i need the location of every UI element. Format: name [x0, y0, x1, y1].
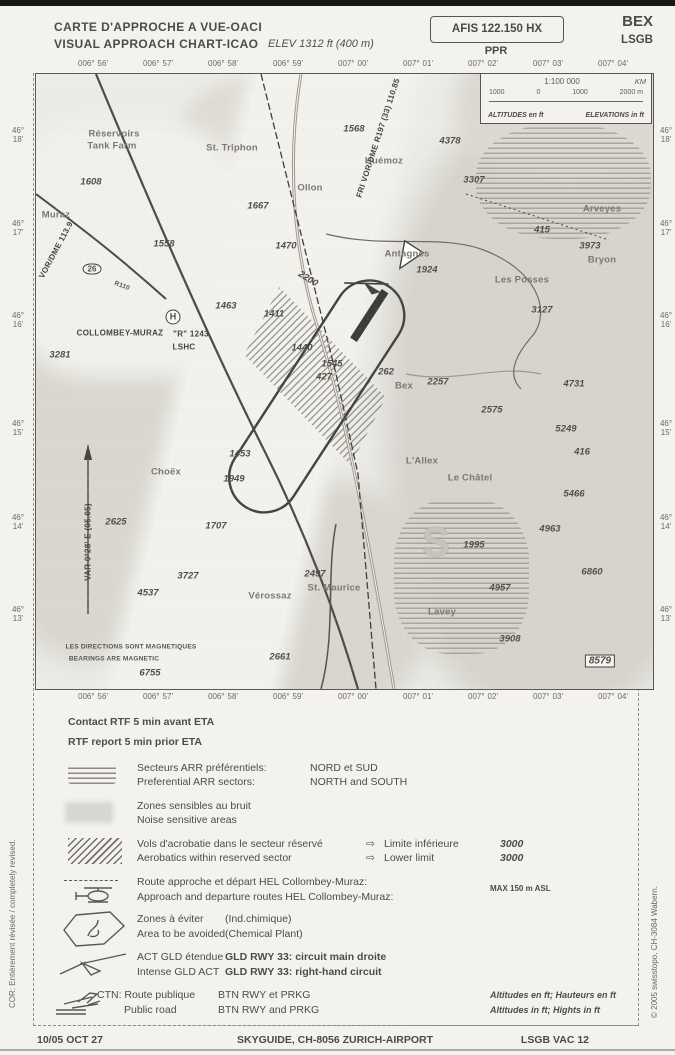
scale-tick: 1000	[489, 89, 505, 96]
elevations-note: ELEVATIONS in ft	[586, 112, 644, 119]
map-label: 1608	[80, 177, 101, 188]
legend-noise-en: Noise sensitive areas	[137, 814, 237, 826]
map-label: Ollon	[297, 183, 322, 194]
latitude-label: 46°13'	[654, 605, 675, 623]
latitude-label: 46°15'	[6, 419, 30, 437]
road-villars	[326, 234, 541, 389]
longitude-label: 007°03'	[533, 692, 563, 701]
latitude-label: 46°16'	[654, 311, 675, 329]
longitude-scale-bottom: 006°56'006°57'006°58'006°59'007°00'007°0…	[35, 692, 652, 704]
scale-bar	[489, 101, 643, 102]
map-label: 3127	[531, 305, 552, 316]
arr-sector-swatch	[68, 764, 116, 784]
legend-gld-en: Intense GLD ACT	[137, 966, 219, 978]
map-label: 5466	[563, 489, 584, 500]
map-label: 1707	[205, 521, 226, 532]
scale-ticks: 1000010002000 m	[489, 89, 643, 96]
map-label: St. Maurice	[308, 583, 361, 594]
legend-hel-fr: Route approche et départ HEL Collombey-M…	[137, 876, 367, 888]
map-label: 416	[574, 447, 590, 458]
map-label: 3973	[579, 241, 600, 252]
map-label: 2497	[304, 569, 325, 580]
copyright-note: © 2005 swisstopo, CH-3084 Wabern.	[650, 886, 659, 1018]
map-label: 1667	[247, 201, 268, 212]
map-label: Tank Farm	[87, 141, 136, 152]
longitude-label: 007°01'	[403, 692, 433, 701]
map-label: 1453	[229, 449, 250, 460]
legend-acro-en: Aerobatics within reserved sector	[137, 852, 292, 864]
latitude-label: 46°18'	[654, 126, 675, 144]
legend-gld-circuit-en: GLD RWY 33: right-hand circuit	[225, 966, 382, 978]
map-label: Le Châtel	[448, 473, 493, 484]
longitude-label: 006°57'	[143, 59, 173, 68]
map-label: COLLOMBEY-MURAZ	[77, 329, 164, 338]
legend-arr-en-value: NORTH and SOUTH	[310, 776, 407, 788]
scale-tick: 1000	[572, 89, 588, 96]
latitude-label: 46°14'	[654, 513, 675, 531]
map-label: 26	[83, 264, 102, 275]
map-label: 1995	[463, 540, 484, 551]
map-label: 1545	[321, 359, 342, 370]
map-label: LSHC	[173, 343, 196, 352]
correction-note: COR: Entièrement révisée / completely re…	[8, 839, 17, 1008]
map-label: 5249	[555, 424, 576, 435]
map-label: 3908	[499, 634, 520, 645]
footer-bar: 10/05 OCT 27 SKYGUIDE, CH-8056 ZURICH-AI…	[33, 1025, 637, 1052]
arrow-icon: ⇨	[366, 852, 375, 864]
latitude-scale-left: 46°18'46°17'46°16'46°15'46°14'46°13'	[6, 73, 32, 688]
latitude-label: 46°17'	[6, 219, 30, 237]
latitude-label: 46°18'	[6, 126, 30, 144]
map-label: L'Allex	[406, 456, 438, 467]
contact-note-en: RTF report 5 min prior ETA	[68, 736, 202, 748]
legend-acro-fr: Vols d'acrobatie dans le secteur réservé	[137, 838, 323, 850]
map-label: 415	[534, 225, 550, 236]
units-note-en: Altitudes in ft; Hights in ft	[490, 1005, 600, 1015]
map-label: 1568	[343, 124, 364, 135]
legend-ctn-fr: CTN: Route publique	[97, 989, 195, 1001]
latitude-scale-right: 46°18'46°17'46°16'46°15'46°14'46°13'	[654, 73, 675, 688]
scale-tick: 0	[536, 89, 540, 96]
longitude-label: 007°02'	[468, 692, 498, 701]
map-label: 1463	[215, 301, 236, 312]
helicopter-icon	[62, 883, 120, 905]
map-label: 1411	[264, 309, 284, 320]
legend-lower-limit-value-en: 3000	[500, 852, 523, 864]
legend-arr-fr: Secteurs ARR préférentiels:	[137, 762, 267, 774]
map-label: Choëx	[151, 467, 181, 478]
airport-icao-code: LSGB	[621, 34, 653, 46]
longitude-label: 007°00'	[338, 692, 368, 701]
latitude-label: 46°13'	[6, 605, 30, 623]
longitude-label: 007°01'	[403, 59, 433, 68]
map-label: BEARINGS ARE MAGNETIC	[69, 656, 159, 663]
scan-top-bar	[0, 0, 675, 6]
map-label: 4378	[439, 136, 460, 147]
longitude-label: 007°02'	[468, 59, 498, 68]
map-label: VAR 0°28' E (05.05)	[84, 503, 93, 581]
aerobatic-sector-swatch	[68, 838, 122, 864]
hel-route-line	[64, 880, 118, 881]
latitude-label: 46°14'	[6, 513, 30, 531]
map-label: 1558	[153, 239, 174, 250]
longitude-label: 006°58'	[208, 59, 238, 68]
longitude-label: 007°04'	[598, 692, 628, 701]
scale-ratio: 1:100 000	[481, 77, 643, 86]
map-label: LES DIRECTIONS SONT MAGNETIQUES	[66, 644, 197, 651]
map-label: S	[422, 518, 450, 566]
avancon-river	[406, 371, 541, 377]
scale-box: 1:100 000 KM 1000010002000 m ALTITUDES e…	[480, 73, 652, 124]
map-label: 6755	[139, 668, 160, 679]
legend-arr-en: Preferential ARR sectors:	[137, 776, 255, 788]
legend-lower-limit-value-fr: 3000	[500, 838, 523, 850]
longitude-label: 006°59'	[273, 692, 303, 701]
latitude-label: 46°15'	[654, 419, 675, 437]
map-label: Lavey	[428, 607, 456, 618]
map-label: Antagnes	[385, 249, 430, 260]
map-linework	[36, 74, 653, 689]
map-label: 262	[378, 367, 394, 378]
map-label: 4537	[137, 588, 158, 599]
map-label: 4731	[563, 379, 584, 390]
legend-ctn-road-en: BTN RWY and PRKG	[218, 1004, 319, 1016]
longitude-label: 007°04'	[598, 59, 628, 68]
map-label: 1440	[291, 343, 312, 354]
map-label: Bryon	[588, 255, 616, 266]
map-label: 1949	[223, 474, 244, 485]
legend-avoid-en-detail: (Chemical Plant)	[225, 928, 303, 940]
map-label: 6860	[581, 567, 602, 578]
map-label: St. Triphon	[206, 143, 258, 154]
map-label: 2257	[427, 377, 448, 388]
altitudes-note: ALTITUDES en ft	[488, 112, 543, 119]
map-label: 4963	[539, 524, 560, 535]
map-label: Réservoirs	[88, 129, 139, 140]
legend-ctn-en: Public road	[124, 1004, 177, 1016]
legend-avoid-en: Area to be avoided	[137, 928, 225, 940]
map-label: 1924	[416, 265, 437, 276]
noise-zone-swatch	[68, 805, 110, 820]
hel-max-altitude-note: MAX 150 m ASL	[490, 884, 551, 893]
map-label: 2661	[269, 652, 290, 663]
scan-bottom-line	[0, 1049, 675, 1051]
airport-name: BEX	[622, 13, 653, 30]
map-label: 3307	[463, 175, 484, 186]
map-label: 8579	[585, 655, 615, 668]
chart-title-fr: CARTE D'APPROCHE A VUE-OACI	[54, 20, 262, 34]
glider-icon	[56, 950, 130, 978]
longitude-label: 006°58'	[208, 692, 238, 701]
map-label: 4957	[489, 583, 510, 594]
map-label: Les Posses	[495, 275, 549, 286]
runway	[350, 289, 388, 342]
ppr-label: PPR	[430, 45, 562, 57]
afis-frequency-box: AFIS 122.150 HX	[430, 16, 564, 43]
map-label: Bex	[395, 381, 413, 392]
footer-chart-ref: LSGB VAC 12	[521, 1034, 589, 1046]
legend-arr-fr-value: NORD et SUD	[310, 762, 378, 774]
longitude-label: 006°57'	[143, 692, 173, 701]
legend-hel-en: Approach and departure routes HEL Collom…	[137, 891, 393, 903]
units-note-fr: Altitudes en ft; Hauteurs en ft	[490, 990, 616, 1000]
longitude-label: 006°56'	[78, 59, 108, 68]
scale-tick: 2000 m	[620, 89, 643, 96]
legend-lower-limit-en: Lower limit	[384, 852, 434, 864]
map-label: "R" 1243	[173, 330, 209, 339]
avoid-area-icon	[58, 910, 128, 948]
map-label: 427	[316, 372, 332, 383]
latitude-label: 46°16'	[6, 311, 30, 329]
map-label: 2625	[105, 517, 126, 528]
legend-avoid-fr: Zones à éviter	[137, 913, 204, 925]
chart-page: CARTE D'APPROCHE A VUE-OACI VISUAL APPRO…	[0, 0, 675, 1055]
map-label: Vérossaz	[248, 591, 291, 602]
longitude-label: 006°59'	[273, 59, 303, 68]
field-elevation: ELEV 1312 ft (400 m)	[268, 38, 374, 50]
map-label: Arveyes	[583, 204, 621, 215]
road-st-maurice	[321, 524, 336, 689]
legend-gld-fr: ACT GLD étendue	[137, 951, 223, 963]
map-label: H	[166, 310, 181, 325]
scale-unit: KM	[635, 77, 646, 86]
chart-title-en: VISUAL APPROACH CHART-ICAO	[54, 37, 258, 51]
contact-note-fr: Contact RTF 5 min avant ETA	[68, 716, 214, 728]
map-label: 3727	[177, 571, 198, 582]
approach-chart-map: RéservoirsTank Farm1608St. Triphon1568Ol…	[35, 73, 654, 690]
map-label: 3281	[49, 350, 70, 361]
map-label: 2575	[481, 405, 502, 416]
map-label: 1470	[275, 241, 296, 252]
legend-avoid-fr-detail: (Ind.chimique)	[225, 913, 292, 925]
latitude-label: 46°17'	[654, 219, 675, 237]
longitude-label: 007°00'	[338, 59, 368, 68]
legend-ctn-road-fr: BTN RWY et PRKG	[218, 989, 310, 1001]
longitude-label: 006°56'	[78, 692, 108, 701]
legend-lower-limit-fr: Limite inférieure	[384, 838, 459, 850]
legend-noise-fr: Zones sensibles au bruit	[137, 800, 251, 812]
legend-gld-circuit-fr: GLD RWY 33: circuit main droite	[225, 951, 386, 963]
longitude-label: 007°03'	[533, 59, 563, 68]
longitude-scale-top: 006°56'006°57'006°58'006°59'007°00'007°0…	[35, 59, 652, 71]
arrow-icon: ⇨	[366, 838, 375, 850]
